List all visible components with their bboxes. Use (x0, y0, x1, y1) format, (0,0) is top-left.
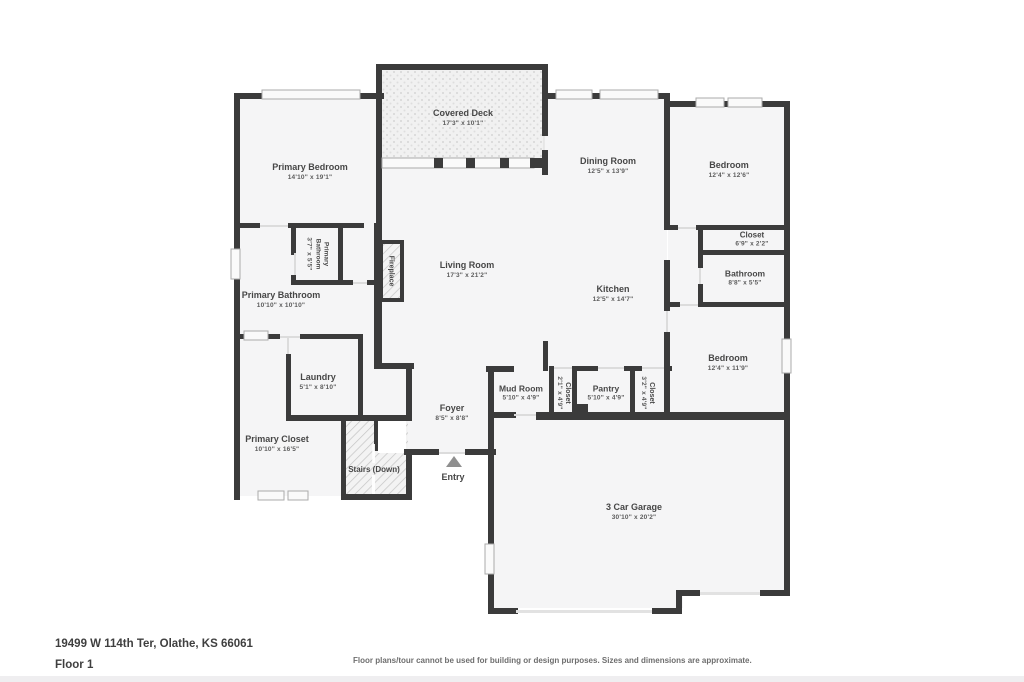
room-name: Living Room (440, 260, 495, 272)
room-name: Primary Bathroom (242, 290, 321, 302)
room-label-foyer: Foyer8'5" x 8'8" (435, 403, 468, 423)
room-name: Mud Room (499, 383, 543, 394)
room-label-pantry: Pantry5'10" x 4'9" (588, 383, 625, 402)
bottom-bar (0, 676, 1024, 682)
floor-plan-page: Covered Deck17'3" x 10'1"Primary Bedroom… (0, 0, 1024, 682)
room-dimensions: 14'10" x 19'1" (272, 174, 348, 182)
room-dimensions: 17'3" x 21'2" (440, 272, 495, 280)
room-dimensions: 3'7" x 5'5" (304, 228, 312, 280)
room-label-garage: 3 Car Garage30'10" x 20'2" (606, 502, 662, 522)
room-name: Kitchen (593, 284, 634, 296)
room-name: Dining Room (580, 156, 636, 168)
room-dimensions: 12'4" x 11'9" (708, 365, 748, 373)
room-label-primary-bathroom-small: Primary Bathroom3'7" x 5'5" (304, 228, 329, 280)
room-name: Closet (647, 376, 656, 409)
room-name: Bedroom (708, 353, 748, 365)
room-dimensions: 2'1" x 4'9" (554, 376, 562, 409)
room-name: Laundry (300, 372, 337, 384)
room-label-primary-bathroom: Primary Bathroom10'10" x 10'10" (242, 290, 321, 310)
disclaimer-text: Floor plans/tour cannot be used for buil… (353, 656, 752, 665)
room-name: Closet (563, 376, 572, 409)
room-dimensions: 10'10" x 10'10" (242, 302, 321, 310)
room-dimensions: 5'10" x 4'9" (499, 394, 543, 402)
room-label-kitchen: Kitchen12'5" x 14'7" (593, 284, 634, 304)
room-dimensions: 5'10" x 4'9" (588, 394, 625, 402)
room-label-mud-room: Mud Room5'10" x 4'9" (499, 383, 543, 402)
room-name: Bedroom (709, 160, 750, 172)
room-name: Pantry (588, 383, 625, 394)
room-name: Closet (735, 231, 768, 241)
room-name: Stairs (Down) (348, 465, 400, 475)
room-label-laundry: Laundry5'1" x 8'10" (300, 372, 337, 392)
room-label-bedroom-2: Bedroom12'4" x 11'9" (708, 353, 748, 373)
room-name: Fireplace (386, 256, 395, 287)
property-address: 19499 W 114th Ter, Olathe, KS 66061 (55, 638, 253, 650)
room-dimensions: 8'8" x 5'5" (725, 279, 765, 287)
room-label-living-room: Living Room17'3" x 21'2" (440, 260, 495, 280)
room-label-closet-2: Closet2'1" x 4'9" (554, 376, 572, 409)
room-label-closet-1: Closet6'9" x 2'2" (735, 231, 768, 250)
room-name: Primary Bedroom (272, 162, 348, 174)
room-labels-layer: Covered Deck17'3" x 10'1"Primary Bedroom… (0, 0, 1024, 682)
room-label-primary-closet: Primary Closet10'10" x 16'5" (245, 434, 309, 454)
room-dimensions: 10'10" x 16'5" (245, 446, 309, 454)
room-dimensions: 30'10" x 20'2" (606, 514, 662, 522)
room-label-bathroom: Bathroom8'8" x 5'5" (725, 268, 765, 287)
entry-direction-icon (446, 456, 462, 467)
room-label-primary-bedroom: Primary Bedroom14'10" x 19'1" (272, 162, 348, 182)
room-name: 3 Car Garage (606, 502, 662, 514)
room-name: Entry (441, 472, 464, 484)
room-dimensions: 17'3" x 10'1" (433, 120, 493, 128)
room-label-covered-deck: Covered Deck17'3" x 10'1" (433, 108, 493, 128)
room-label-fireplace: Fireplace (386, 256, 395, 287)
room-name: Primary Bathroom (313, 228, 330, 280)
room-name: Bathroom (725, 268, 765, 279)
room-dimensions: 8'5" x 8'8" (435, 415, 468, 423)
room-name: Primary Closet (245, 434, 309, 446)
room-dimensions: 12'5" x 13'9" (580, 168, 636, 176)
room-label-dining-room: Dining Room12'5" x 13'9" (580, 156, 636, 176)
room-dimensions: 12'5" x 14'7" (593, 296, 634, 304)
room-label-stairs: Stairs (Down) (348, 444, 400, 496)
room-dimensions: 3'2" x 4'9" (638, 376, 646, 409)
room-label-bedroom-1: Bedroom12'4" x 12'6" (709, 160, 750, 180)
room-name: Covered Deck (433, 108, 493, 120)
floor-label: Floor 1 (55, 659, 93, 671)
room-label-closet-3: Closet3'2" x 4'9" (638, 376, 656, 409)
room-dimensions: 6'9" x 2'2" (735, 241, 768, 249)
room-label-entry: Entry (441, 472, 464, 484)
room-dimensions: 5'1" x 8'10" (300, 384, 337, 392)
room-dimensions: 12'4" x 12'6" (709, 172, 750, 180)
room-name: Foyer (435, 403, 468, 415)
